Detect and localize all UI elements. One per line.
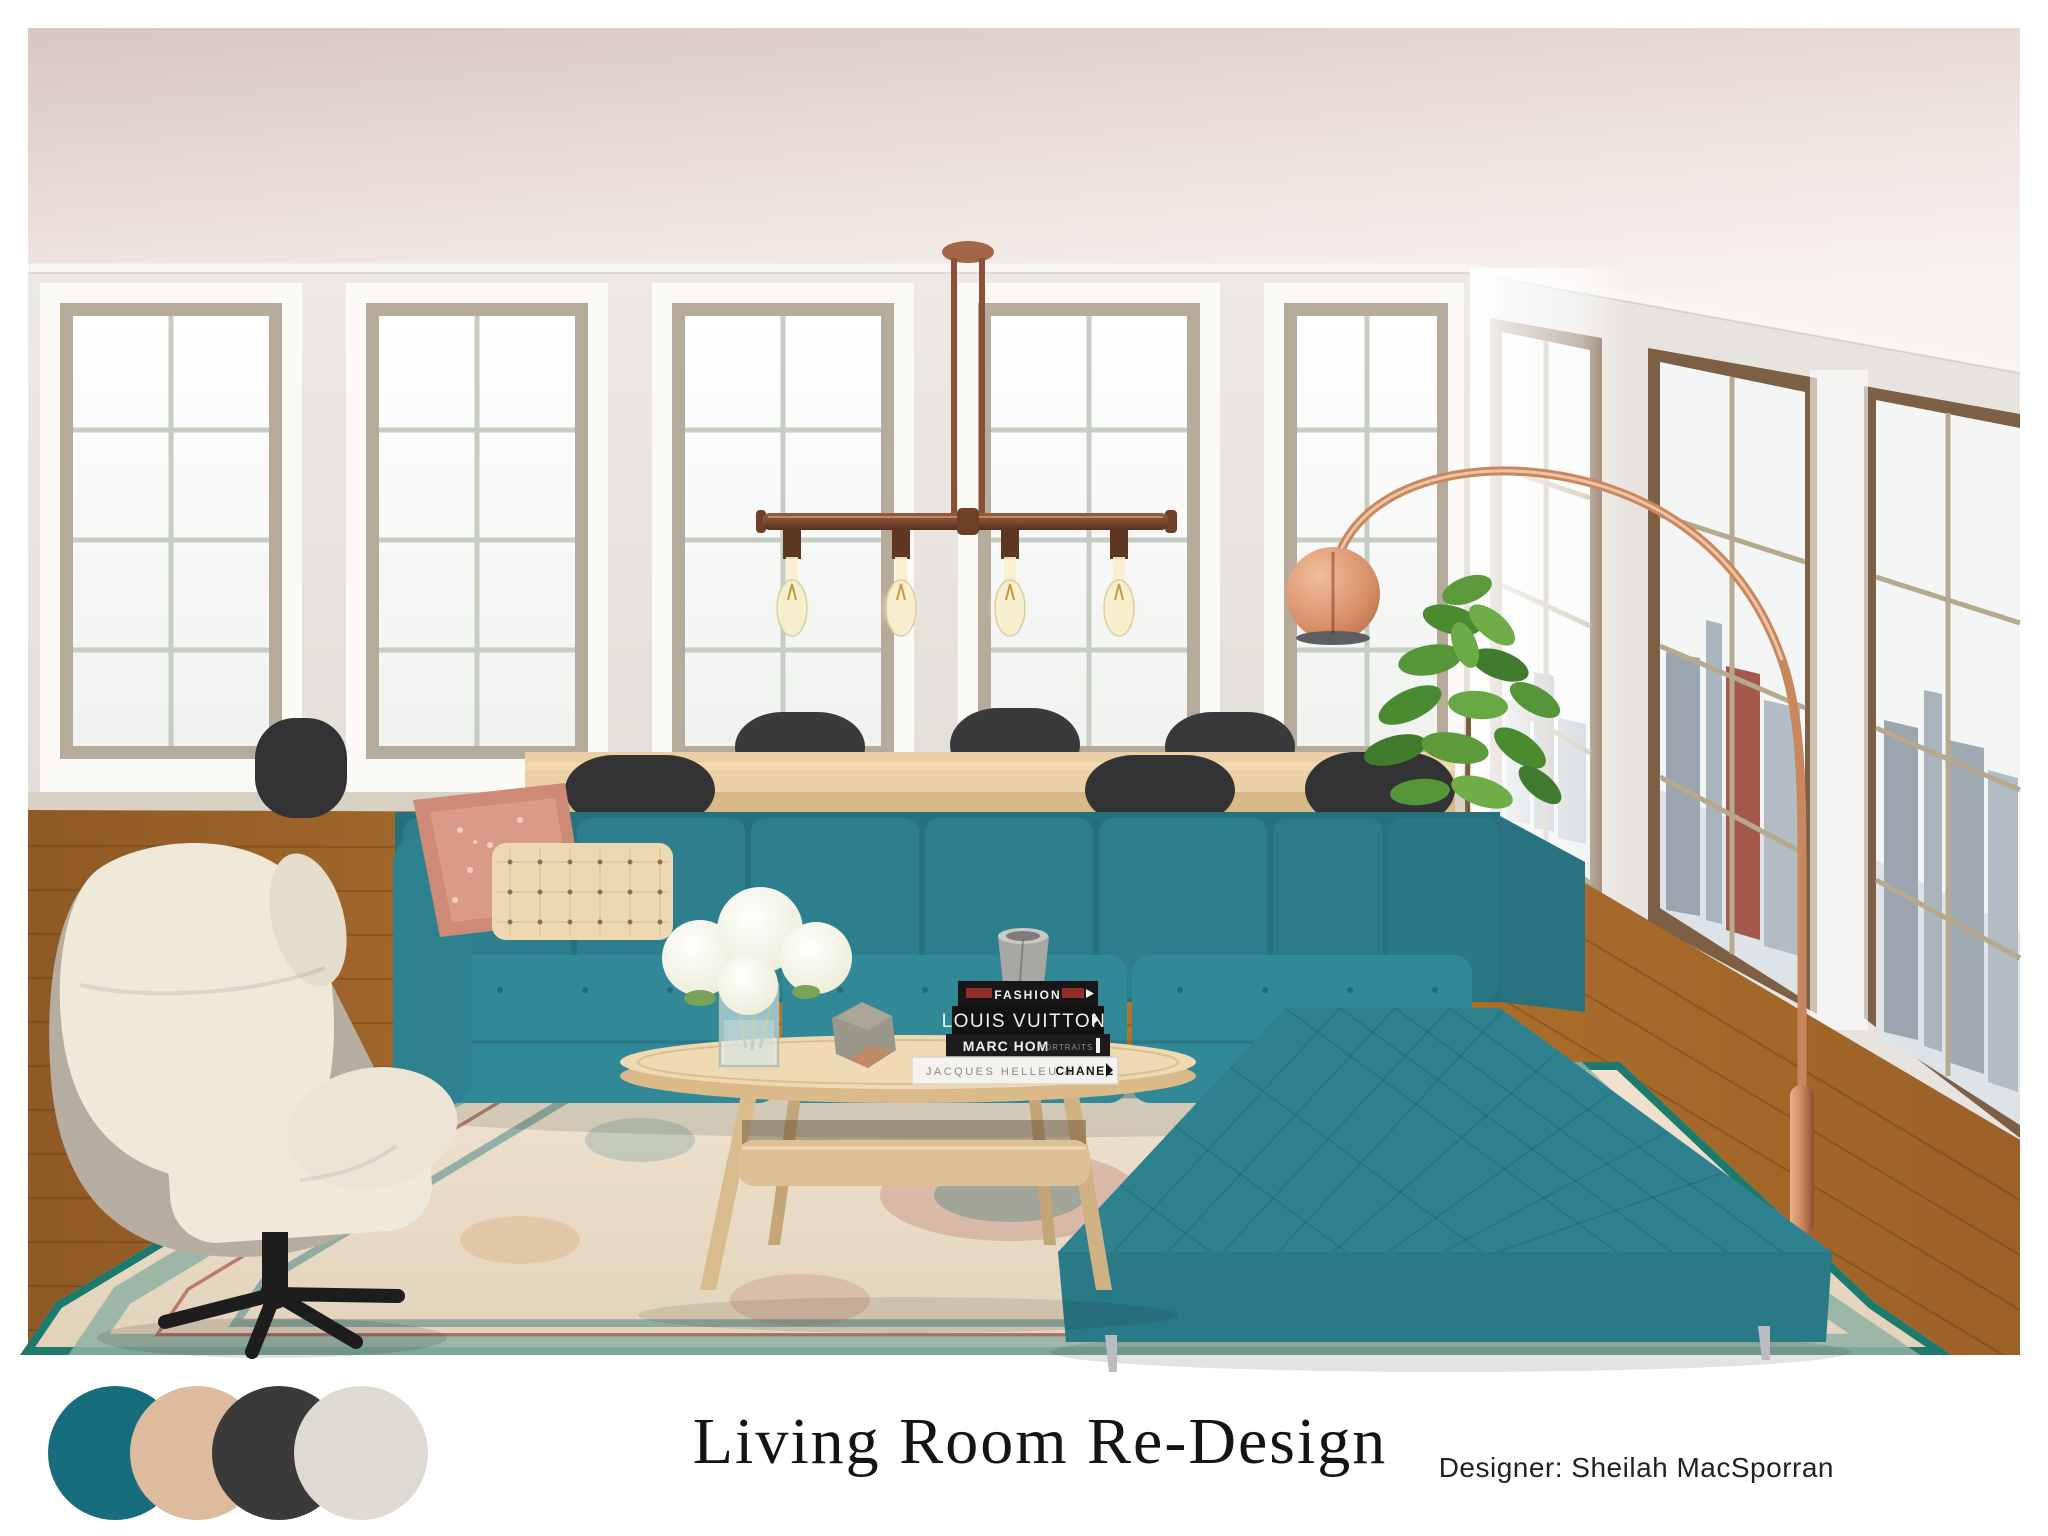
- svg-text:FASHION: FASHION: [994, 988, 1061, 1002]
- ceramic-cup: [998, 928, 1049, 984]
- svg-text:MARC HOM: MARC HOM: [963, 1038, 1050, 1054]
- lamp-pole-sleeve: [1790, 1085, 1814, 1235]
- svg-text:CHANEL: CHANEL: [1056, 1064, 1115, 1078]
- pendant-canopy: [942, 241, 994, 263]
- mood-board: FASHION LOUIS VUITTON MARC HOM PORTRAITS…: [0, 0, 2048, 1536]
- svg-text:LOUIS VUITTON: LOUIS VUITTON: [942, 1011, 1107, 1032]
- svg-text:PORTRAITS: PORTRAITS: [1039, 1043, 1094, 1052]
- window-1: [40, 283, 302, 792]
- window-5: [1264, 283, 1464, 792]
- designer-credit: Designer: Sheilah MacSporran: [1439, 1452, 1834, 1484]
- book-fashion: FASHION: [958, 981, 1098, 1006]
- window-2: [346, 283, 608, 792]
- side-window-c: [1864, 386, 2020, 1138]
- sheer-curtain-2: [1810, 370, 1868, 1030]
- palette-swatch-ivory: [294, 1386, 428, 1520]
- svg-text:JACQUES HELLEU &: JACQUES HELLEU &: [926, 1066, 1074, 1078]
- book-chanel: JACQUES HELLEU & CHANEL: [912, 1057, 1118, 1084]
- book-marc-hom: MARC HOM PORTRAITS: [946, 1034, 1110, 1057]
- living-room-scene: FASHION LOUIS VUITTON MARC HOM PORTRAITS…: [0, 0, 2048, 1536]
- champagne-dot-pillow: [492, 843, 673, 940]
- book-louis-vuitton: LOUIS VUITTON: [942, 1006, 1107, 1034]
